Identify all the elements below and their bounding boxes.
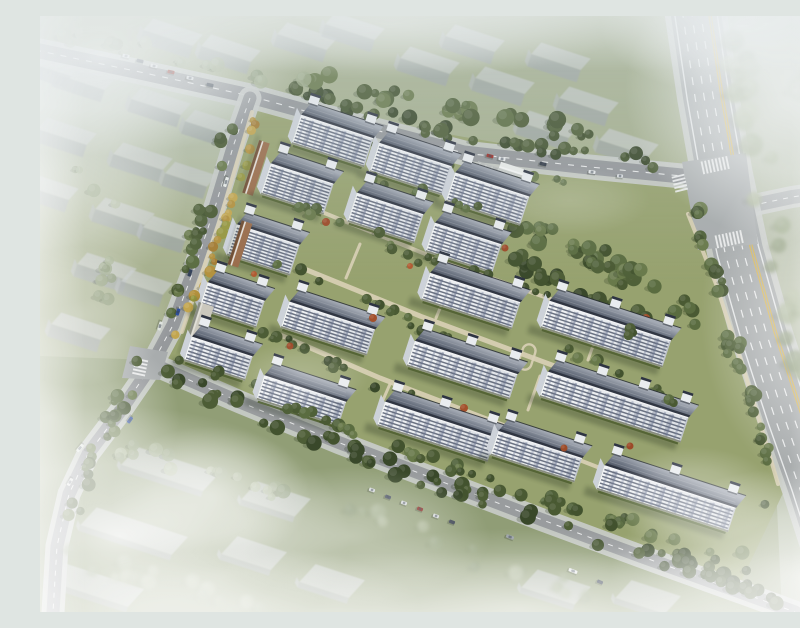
haze-layer [40, 16, 800, 612]
aerial-residential-render [40, 16, 800, 612]
atmosphere-tint [40, 16, 800, 612]
render-canvas [40, 16, 800, 612]
